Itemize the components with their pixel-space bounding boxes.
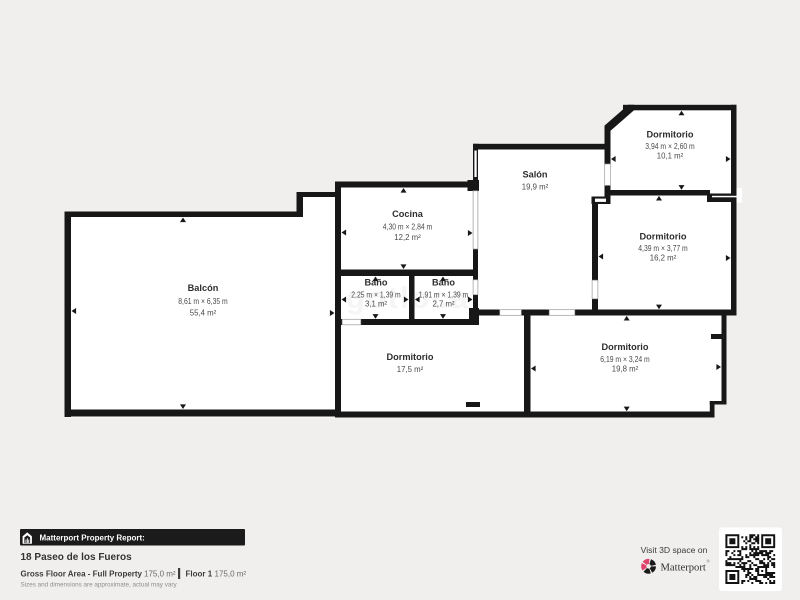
svg-text:2,25 m × 1,39 m: 2,25 m × 1,39 m	[351, 291, 401, 300]
svg-text:4,39 m × 3,77 m: 4,39 m × 3,77 m	[638, 244, 688, 253]
svg-text:®: ®	[707, 559, 711, 564]
svg-text:175,0 m²: 175,0 m²	[144, 569, 176, 578]
svg-text:Visit 3D space on: Visit 3D space on	[641, 545, 708, 555]
svg-text:Salón: Salón	[522, 170, 547, 180]
svg-text:Gross Floor Area - Full Proper: Gross Floor Area - Full Property	[21, 569, 143, 578]
svg-text:19,9 m²: 19,9 m²	[522, 183, 549, 192]
svg-text:Matterport Property Report:: Matterport Property Report:	[40, 533, 145, 542]
svg-text:Floor 1: Floor 1	[186, 569, 213, 578]
svg-text:Cocina: Cocina	[392, 209, 424, 219]
svg-text:Matterport: Matterport	[661, 562, 706, 573]
svg-text:175,0 m²: 175,0 m²	[215, 569, 247, 578]
svg-text:10,1 m²: 10,1 m²	[657, 151, 684, 160]
svg-text:19,8 m²: 19,8 m²	[612, 365, 639, 374]
svg-text:3,1 m²: 3,1 m²	[365, 300, 387, 309]
svg-text:55,4 m²: 55,4 m²	[190, 309, 217, 318]
svg-text:17,5 m²: 17,5 m²	[397, 365, 424, 374]
svg-text:12,2 m²: 12,2 m²	[394, 233, 421, 242]
svg-text:Dormitorio: Dormitorio	[602, 342, 649, 352]
svg-text:3,94 m × 2,60 m: 3,94 m × 2,60 m	[645, 142, 695, 151]
svg-text:16,2 m²: 16,2 m²	[650, 253, 677, 262]
svg-text:Baño: Baño	[365, 278, 388, 288]
svg-text:4,30 m × 2,84 m: 4,30 m × 2,84 m	[383, 223, 433, 232]
svg-text:18 Paseo de los Fueros: 18 Paseo de los Fueros	[21, 552, 133, 563]
svg-text:Dormitorio: Dormitorio	[387, 352, 434, 362]
svg-text:Sizes and dimensions are appro: Sizes and dimensions are approximate, ac…	[21, 581, 178, 588]
svg-text:Dormitorio: Dormitorio	[640, 232, 687, 242]
svg-text:6,19 m × 3,24 m: 6,19 m × 3,24 m	[600, 355, 650, 364]
svg-text:Dormitorio: Dormitorio	[647, 130, 694, 140]
svg-text:Balcón: Balcón	[188, 283, 219, 293]
svg-text:8,61 m × 6,35 m: 8,61 m × 6,35 m	[178, 297, 228, 306]
svg-text:2,7 m²: 2,7 m²	[432, 300, 454, 309]
svg-text:1,91 m × 1,39 m: 1,91 m × 1,39 m	[419, 291, 469, 300]
svg-text:Baño: Baño	[432, 278, 455, 288]
